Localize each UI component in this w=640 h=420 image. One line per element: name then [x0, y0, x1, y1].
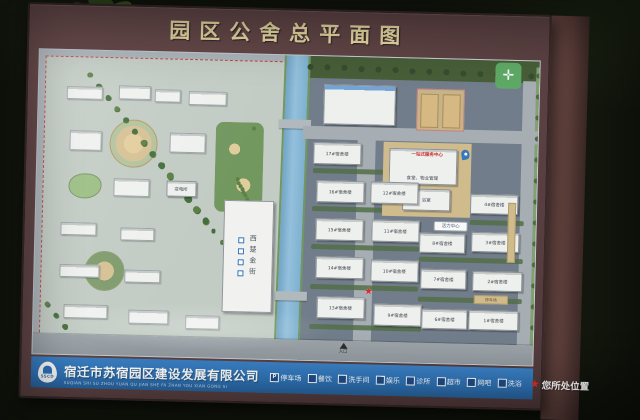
supermarket-icon — [436, 377, 445, 386]
gold-street-label: 西楚金街 — [247, 234, 258, 278]
service-center-label: 一站式服务中心 — [411, 151, 443, 158]
tree-icon — [140, 139, 146, 145]
legend-item-location: ★ 您所处位置 — [530, 377, 590, 392]
planned-building — [420, 94, 439, 128]
bridge — [275, 291, 307, 301]
legend-label: 洗浴 — [508, 378, 522, 388]
legend-label: 您所处位置 — [542, 377, 590, 392]
tree-icon — [532, 241, 537, 246]
dorm-label: 6#宿舍楼 — [434, 316, 454, 323]
legend-label: 诊所 — [416, 376, 430, 386]
apartment-building — [120, 227, 154, 241]
tree-icon — [534, 178, 539, 183]
tree-icon — [45, 302, 50, 307]
site-plan-map: 变电所 西楚金街 ✛ 食堂、物业管理 一站式服务中心 浴室 — [31, 48, 540, 366]
dorm-label: 12#宿舍楼 — [383, 190, 406, 197]
apartment-building — [63, 304, 107, 319]
tree-icon — [531, 283, 536, 288]
dorm-building: 2#宿舍楼 — [472, 271, 522, 292]
legend-item-bath: 洗浴 — [497, 378, 522, 389]
tree-icon — [132, 128, 138, 134]
apartment-building — [69, 130, 101, 151]
restroom-icon — [338, 375, 347, 384]
tree-icon — [530, 325, 535, 330]
tree-icon — [532, 262, 537, 267]
parking-strip — [507, 203, 516, 263]
apartment-building — [185, 315, 219, 330]
dorm-building: 9#宿舍楼 — [373, 304, 422, 327]
apartment-building — [169, 133, 205, 154]
company-logo: SSCD — [38, 361, 58, 382]
clinic-icon — [406, 376, 415, 385]
legend-label: 停车场 — [280, 373, 301, 384]
tree-icon — [531, 304, 536, 309]
company-block: 宿迁市苏宿园区建设发展有限公司 SUQIAN SHI SU ZHOU YUAN … — [64, 360, 260, 389]
you-are-here-star: ★ — [364, 287, 373, 297]
dorm-label: 15#宿舍楼 — [328, 226, 351, 233]
entrance-marker: 入口 — [338, 343, 347, 355]
planned-building — [442, 94, 461, 128]
dorm-label: 2#宿舍楼 — [487, 278, 507, 285]
dorm-building: 15#宿舍楼 — [315, 218, 364, 241]
apartment-building — [128, 310, 168, 325]
dorm-label: 16#宿舍楼 — [329, 188, 352, 195]
apartment-building — [124, 269, 160, 283]
tree-icon — [535, 115, 540, 120]
dorm-label: 1#宿舍楼 — [483, 317, 503, 324]
apartment-building — [60, 222, 96, 236]
tree-icon — [307, 64, 313, 70]
bathhouse-label: 浴室 — [422, 197, 431, 204]
planned-building-block — [416, 89, 465, 132]
logo-text: SSCD — [41, 373, 54, 378]
map-legend: P 停车场 餐饮 洗手间 娱乐 诊所 — [270, 371, 590, 393]
dining-icon — [307, 374, 316, 383]
canteen-label: 食堂、物业管理 — [407, 175, 439, 182]
tree-icon — [211, 229, 215, 233]
tree-icon — [409, 68, 415, 74]
dorm-building: 11#宿舍楼 — [371, 219, 420, 242]
legend-item-dining: 餐饮 — [307, 373, 332, 384]
street-shop-icons — [237, 237, 244, 276]
commercial-street-building: 西楚金街 — [221, 200, 274, 313]
legend-label: 网吧 — [477, 378, 491, 388]
tree-icon — [477, 71, 483, 77]
dorm-label: 8#宿舍楼 — [432, 240, 452, 247]
commercial-building — [323, 84, 396, 126]
apartment-building — [119, 85, 151, 100]
tree-icon — [533, 199, 538, 204]
legend-item-clinic: 诊所 — [406, 376, 431, 387]
parking-label: 停车场 — [485, 297, 497, 303]
logo-shield-icon — [43, 365, 52, 373]
dorm-label: 10#宿舍楼 — [383, 268, 406, 275]
tree-icon — [426, 69, 432, 75]
parking-icon: P — [270, 373, 279, 382]
dorm-building: 13#宿舍楼 — [316, 296, 365, 319]
dorm-label: 14#宿舍楼 — [328, 264, 351, 271]
apartment-building — [189, 91, 227, 106]
signboard: 园区公舍总平面图 — [18, 2, 552, 411]
legend-label: 超市 — [447, 377, 461, 387]
apartment-building — [113, 178, 149, 197]
compass-icon: ✛ — [495, 62, 522, 89]
legend-item-parking: P 停车场 — [270, 373, 302, 384]
legend-item-entertainment: 娱乐 — [375, 375, 400, 386]
legend-item-restroom: 洗手间 — [338, 374, 370, 385]
dorm-label: 3#宿舍楼 — [485, 239, 505, 246]
apartment-building — [59, 264, 99, 278]
tree-icon — [62, 324, 67, 329]
tree-icon — [149, 151, 155, 157]
tree-icon — [536, 73, 540, 78]
location-star-icon: ★ — [530, 378, 540, 389]
dorm-building: 16#宿舍楼 — [316, 180, 365, 203]
dorm-label: 13#宿舍楼 — [329, 304, 352, 311]
entrance-label: 入口 — [338, 349, 347, 355]
vitality-center: 活力中心 — [434, 221, 468, 232]
legend-label: 餐饮 — [318, 374, 332, 384]
sign-title: 园区公舍总平面图 — [169, 14, 410, 50]
playground-park — [214, 122, 264, 213]
entertainment-icon — [375, 376, 384, 385]
dorm-label: 4#宿舍楼 — [484, 201, 504, 208]
tree-icon — [528, 73, 534, 79]
dorm-building: 6#宿舍楼 — [421, 309, 467, 330]
tree-icon — [460, 70, 466, 76]
dorm-building: 8#宿舍楼 — [419, 233, 465, 254]
dorm-building: 17#宿舍楼 — [313, 142, 362, 165]
substation-building: 变电所 — [166, 180, 196, 197]
tree-icon — [358, 66, 364, 72]
legend-label: 洗手间 — [348, 374, 369, 385]
dorm-building: 1#宿舍楼 — [468, 310, 518, 331]
legend-item-supermarket: 超市 — [436, 377, 461, 388]
tree-icon — [536, 94, 541, 99]
dorm-building: 12#宿舍楼 — [370, 181, 419, 204]
dorm-label: 7#宿舍楼 — [433, 276, 453, 283]
parking-strip: 停车场 — [474, 295, 508, 305]
substation-label: 变电所 — [175, 185, 189, 192]
dorm-building: 14#宿舍楼 — [315, 256, 364, 279]
apartment-building — [155, 89, 181, 103]
apartment-building — [67, 86, 103, 100]
tree-icon — [123, 117, 129, 123]
tree-icon — [533, 220, 538, 225]
tree-icon — [534, 157, 539, 162]
tree-icon — [535, 136, 540, 141]
dorm-label: 11#宿舍楼 — [384, 228, 407, 235]
tree-icon — [375, 66, 381, 72]
photo-of-signboard: 园区公舍总平面图 — [0, 0, 640, 420]
dorm-building: 10#宿舍楼 — [370, 259, 419, 282]
dorm-building: 7#宿舍楼 — [420, 269, 466, 290]
tree-icon — [88, 72, 93, 77]
dorm-label: 17#宿舍楼 — [326, 150, 349, 157]
bath-icon — [497, 379, 506, 388]
internet-cafe-icon — [467, 378, 476, 387]
tree-icon — [167, 173, 174, 180]
vitality-center-label: 活力中心 — [442, 223, 460, 229]
legend-item-internet-cafe: 网吧 — [467, 377, 492, 388]
legend-label: 娱乐 — [386, 375, 400, 385]
dorm-label: 9#宿舍楼 — [387, 312, 407, 319]
